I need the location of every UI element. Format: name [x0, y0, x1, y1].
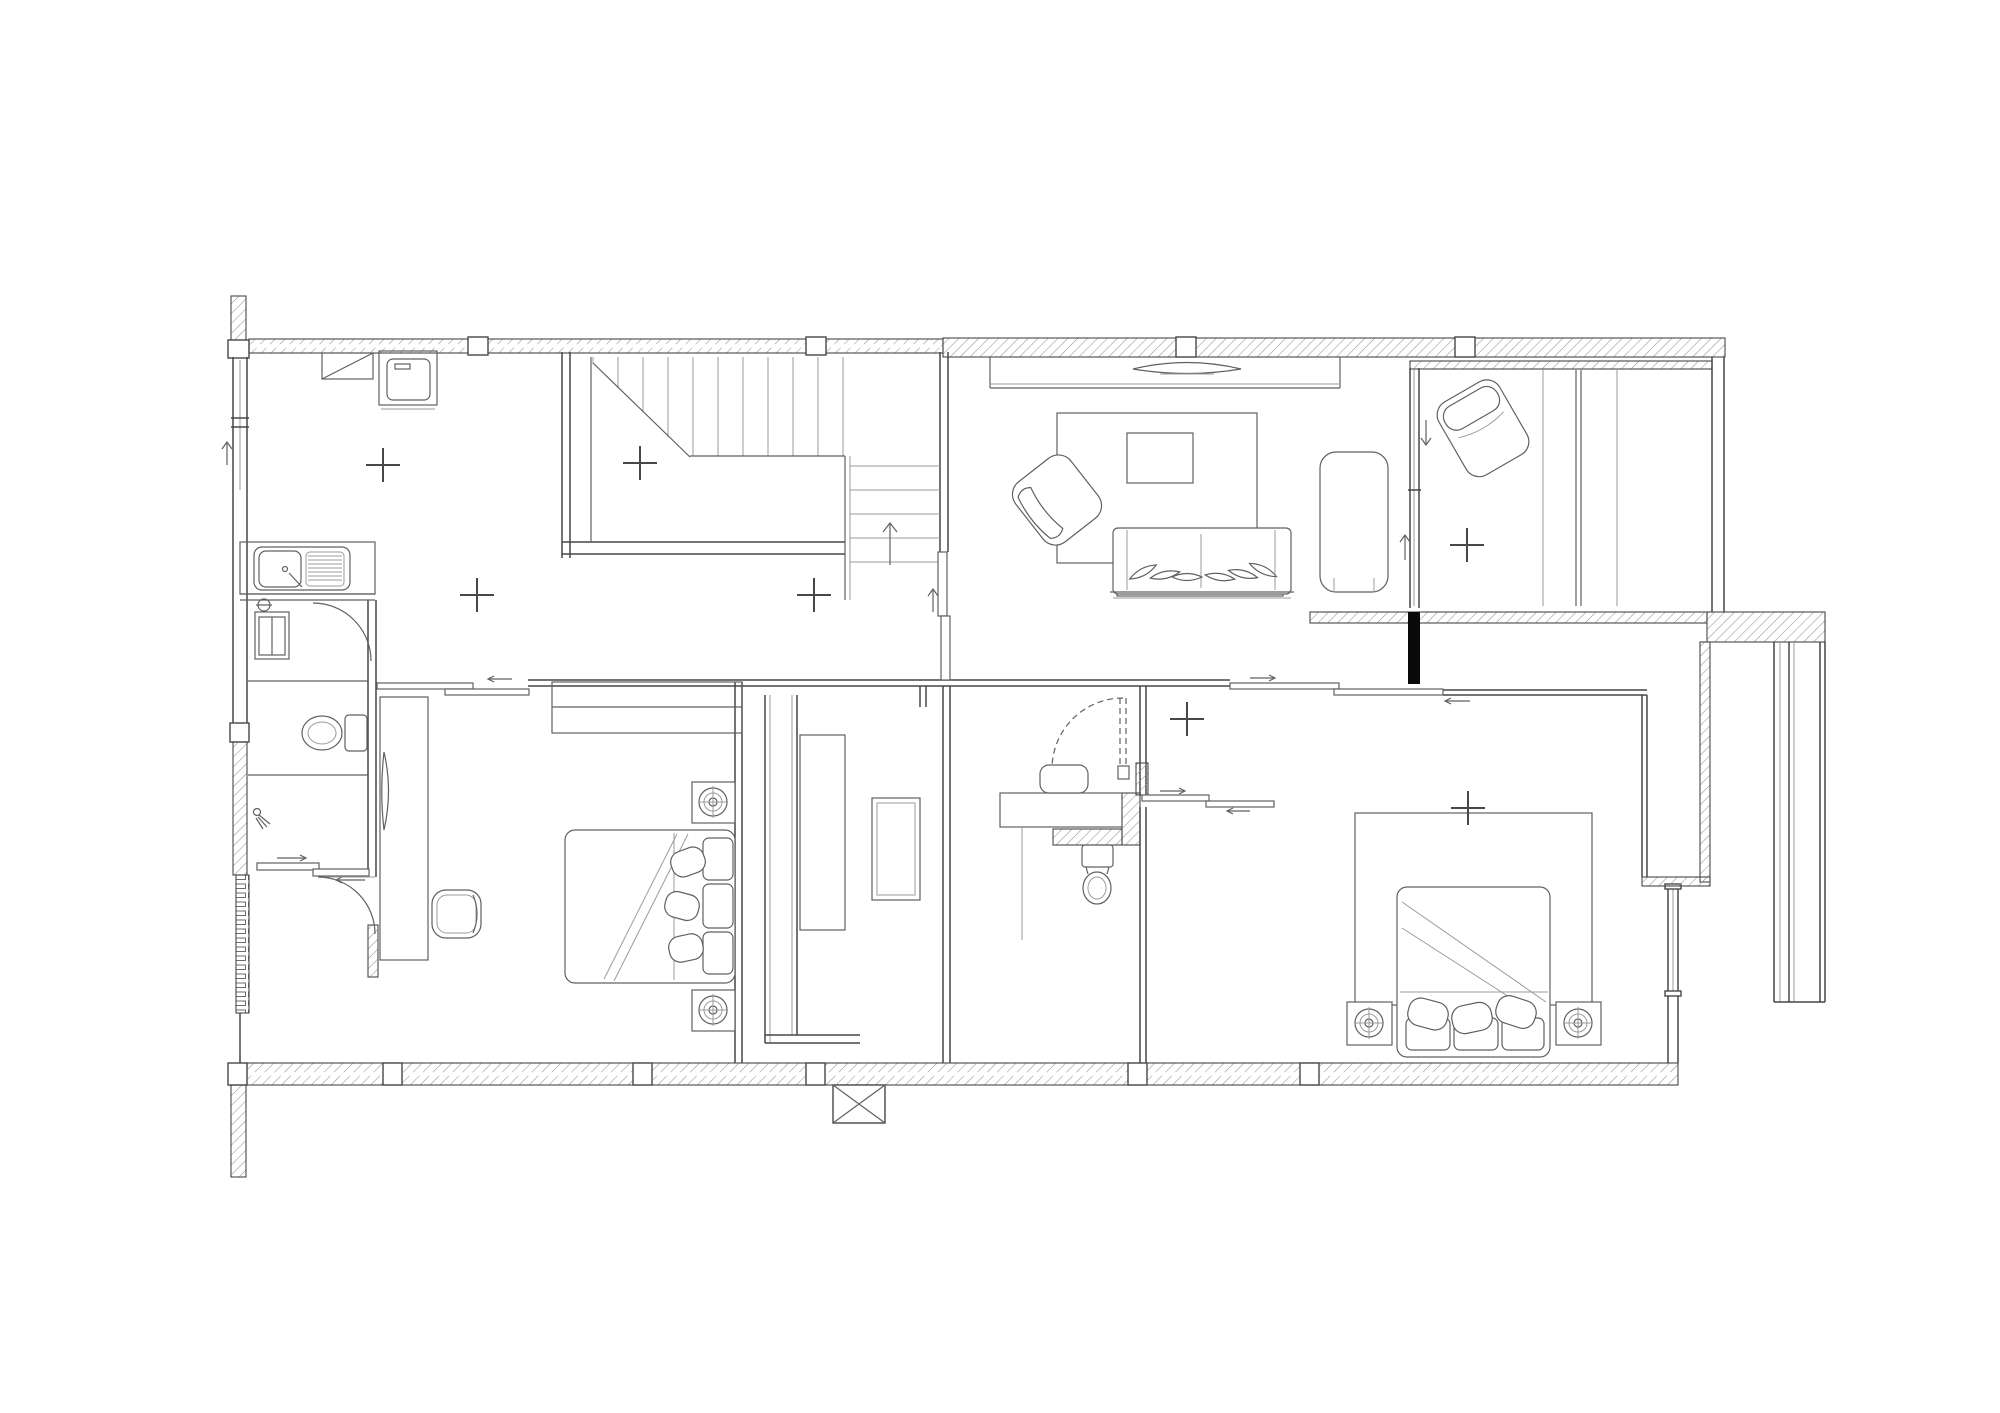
cross-marker: [1170, 702, 1204, 736]
double-bed: [1397, 887, 1550, 1057]
column: [1128, 1063, 1147, 1085]
column: [383, 1063, 402, 1085]
tv: [1133, 363, 1241, 375]
shower-head: [254, 809, 271, 830]
lounge-chair: [1432, 374, 1535, 482]
column: [468, 337, 488, 355]
wall-stub: [1136, 763, 1148, 795]
column: [806, 1063, 825, 1085]
tall-cabinet: [255, 612, 289, 659]
wardrobe: [552, 682, 742, 733]
stair-up-arrow: [883, 523, 897, 565]
stair-break-line: [593, 363, 690, 457]
wall-pier: [231, 1085, 246, 1177]
column: [228, 340, 249, 358]
balcony-inner-wall: [1410, 361, 1712, 369]
survey-cross-markers: [366, 446, 1485, 825]
balcony-lounge: [1400, 368, 1617, 608]
wall-hatched-left: [233, 742, 247, 875]
floor-drain: [256, 599, 272, 611]
closet-island: [800, 735, 845, 930]
louver-wall: [236, 875, 249, 1013]
nightstand-downlight: [1556, 1002, 1601, 1045]
column: [1176, 337, 1196, 357]
entry-shaft: [833, 1085, 885, 1123]
chaise-lounge: [1320, 452, 1388, 592]
wall-hatched-right: [1700, 642, 1710, 882]
kitchen-sink-counter: [240, 542, 375, 600]
cross-marker: [797, 578, 831, 612]
window-glazing-balcony: [1408, 368, 1421, 608]
cross-marker: [623, 446, 657, 480]
bathroom-left: [248, 599, 371, 883]
cross-marker: [1451, 791, 1485, 825]
nightstand-downlight: [692, 990, 735, 1031]
stairwell: [591, 357, 940, 600]
wall-stub: [368, 925, 378, 977]
exterior-wall-top-right: [943, 338, 1725, 357]
nightstand-downlight: [1347, 1002, 1392, 1045]
living-room: [990, 357, 1388, 598]
column: [228, 1063, 247, 1085]
toilet: [302, 715, 367, 751]
column: [1455, 337, 1475, 357]
armchair: [1006, 449, 1108, 552]
wall-mirror: [382, 752, 389, 830]
kitchen-laundry: [240, 351, 437, 600]
wall-pier: [231, 296, 246, 342]
column: [1300, 1063, 1319, 1085]
window-arrow: [222, 442, 232, 465]
toilet: [1082, 845, 1113, 904]
dryer-appliance: [379, 351, 437, 409]
bedroom-left: [318, 676, 742, 1031]
window-glazing-left: [231, 357, 249, 490]
wall-stub: [1053, 829, 1122, 845]
cross-marker: [1450, 528, 1484, 562]
column: [230, 723, 249, 742]
sofa: [1110, 528, 1294, 598]
nightstand-downlight: [692, 782, 735, 823]
office-chair: [432, 890, 481, 938]
vanity-basin: [1040, 765, 1088, 793]
glass-partition: [1543, 370, 1617, 606]
vanity-counter: [1000, 793, 1122, 827]
washing-machine: [322, 353, 373, 379]
sliding-door: [1230, 675, 1470, 704]
floor-plan-drawing: [0, 0, 2000, 1413]
sliding-door: [257, 855, 369, 883]
cross-marker: [460, 578, 494, 612]
column: [633, 1063, 652, 1085]
coffee-table: [1127, 433, 1193, 483]
closet-cabinet: [872, 798, 920, 900]
walk-in-closet: [800, 735, 920, 930]
wall-band: [1310, 612, 1707, 623]
wall-cap: [1642, 877, 1710, 886]
desk: [380, 697, 428, 960]
cross-marker: [366, 448, 400, 482]
sliding-door: [377, 676, 529, 695]
double-bed: [565, 830, 735, 983]
wall-stub: [1122, 793, 1140, 845]
right-service-strip: [1774, 642, 1825, 1002]
bathroom-center: [1000, 698, 1129, 940]
window-glazing-right: [1665, 884, 1681, 1063]
stair-treads-upper: [593, 357, 843, 456]
sliding-door-vertical: [928, 552, 950, 680]
sliding-door: [1142, 788, 1274, 814]
wall-band-thick: [1707, 612, 1825, 642]
swing-door: [313, 603, 371, 661]
floor-plan-canvas: [0, 0, 2000, 1413]
pillows: [662, 838, 733, 974]
swing-door: [318, 877, 375, 934]
bedroom-right: [1142, 675, 1601, 1057]
column: [806, 337, 826, 355]
stair-treads-lower: [850, 466, 940, 562]
solid-wall-black: [1408, 612, 1420, 684]
